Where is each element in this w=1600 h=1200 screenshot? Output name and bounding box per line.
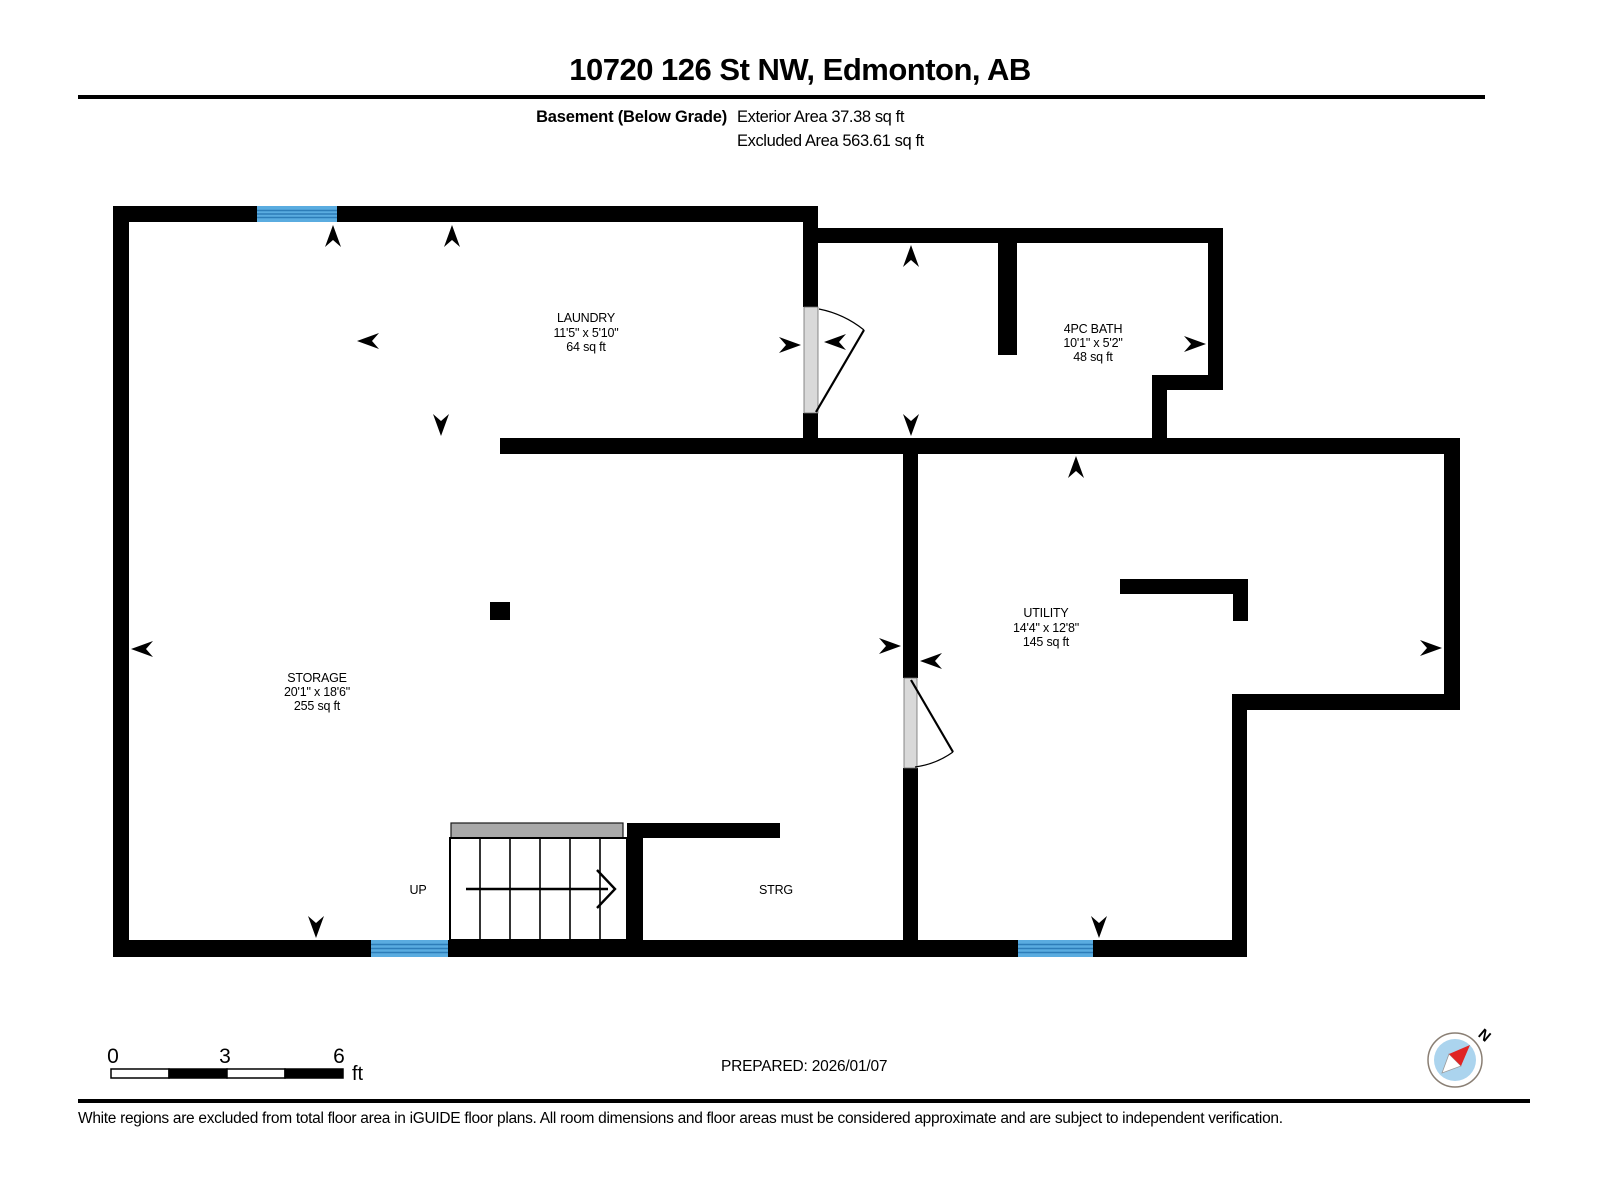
wall-segment bbox=[113, 206, 129, 957]
direction-arrow-icon bbox=[433, 414, 449, 436]
wall-segment bbox=[903, 768, 918, 957]
window-marker bbox=[371, 940, 448, 957]
wall-segment bbox=[1232, 694, 1460, 710]
direction-arrow-icon bbox=[1420, 640, 1442, 656]
wall-segment bbox=[803, 206, 818, 307]
compass-icon: N bbox=[1428, 1026, 1494, 1087]
direction-arrow-icon bbox=[824, 334, 846, 350]
floorplan-page: 10720 126 St NW, Edmonton, AB Basement (… bbox=[0, 0, 1600, 1200]
windows bbox=[257, 206, 1093, 957]
scale-segment bbox=[169, 1069, 227, 1078]
door-swing-utility bbox=[904, 678, 953, 768]
wall-segment bbox=[627, 823, 643, 957]
wall-segment bbox=[1232, 694, 1247, 957]
wall-segment bbox=[998, 243, 1017, 355]
room-label-storage-area: 255 sq ft bbox=[294, 699, 341, 713]
floorplan-drawing: LAUNDRY 11'5" x 5'10" 64 sq ft 4PC BATH … bbox=[0, 0, 1600, 1200]
direction-arrow-icon bbox=[1068, 456, 1084, 478]
scale-segment bbox=[111, 1069, 169, 1078]
window-marker bbox=[257, 206, 337, 222]
wall-segment bbox=[818, 228, 1223, 243]
direction-arrow-icon bbox=[920, 653, 942, 669]
room-label-laundry-name: LAUNDRY bbox=[557, 311, 616, 325]
scale-unit-label: ft bbox=[352, 1063, 364, 1085]
room-label-storage-name: STORAGE bbox=[287, 671, 347, 685]
room-label-bath-area: 48 sq ft bbox=[1073, 350, 1113, 364]
strg-label: STRG bbox=[759, 883, 793, 897]
room-label-utility-area: 145 sq ft bbox=[1023, 635, 1070, 649]
scale-tick-3: 3 bbox=[219, 1045, 231, 1068]
support-column bbox=[490, 602, 510, 620]
direction-arrow-icon bbox=[903, 245, 919, 267]
room-label-laundry-area: 64 sq ft bbox=[566, 340, 606, 354]
direction-arrow-icon bbox=[1091, 916, 1107, 938]
wall-segment bbox=[500, 438, 1460, 454]
scale-tick-0: 0 bbox=[107, 1045, 119, 1068]
footer-divider bbox=[78, 1099, 1530, 1103]
door-swing-laundry bbox=[804, 307, 864, 413]
disclaimer-text: White regions are excluded from total fl… bbox=[78, 1110, 1538, 1128]
stairs-up-label: UP bbox=[410, 883, 427, 897]
wall-segment bbox=[113, 206, 818, 222]
direction-arrow-icon bbox=[131, 641, 153, 657]
direction-arrow-icon bbox=[444, 225, 460, 247]
room-label-bath-dims: 10'1" x 5'2" bbox=[1063, 336, 1122, 350]
direction-arrow-icon bbox=[779, 337, 801, 353]
wall-segment bbox=[1233, 594, 1248, 621]
wall-segment bbox=[1208, 243, 1223, 390]
window-marker bbox=[1018, 940, 1093, 957]
direction-arrow-icon bbox=[357, 333, 379, 349]
scale-segment bbox=[227, 1069, 285, 1078]
scale-segment bbox=[285, 1069, 343, 1078]
room-label-laundry-dims: 11'5" x 5'10" bbox=[553, 326, 618, 340]
direction-arrow-icon bbox=[325, 225, 341, 247]
wall-segment bbox=[1120, 579, 1248, 594]
direction-arrow-icon bbox=[308, 916, 324, 938]
wall-segment bbox=[903, 454, 918, 678]
wall-segment bbox=[1152, 375, 1223, 390]
room-label-storage-dims: 20'1" x 18'6" bbox=[284, 685, 350, 699]
scale-bar: 0 3 6 ft bbox=[107, 1045, 363, 1085]
room-label-utility-dims: 14'4" x 12'8" bbox=[1013, 621, 1079, 635]
prepared-date: PREPARED: 2026/01/07 bbox=[721, 1058, 887, 1076]
room-label-utility-name: UTILITY bbox=[1023, 606, 1069, 620]
wall-segment bbox=[643, 823, 780, 838]
room-label-bath-name: 4PC BATH bbox=[1064, 322, 1123, 336]
direction-arrow-icon bbox=[879, 638, 901, 654]
compass-north-label: N bbox=[1475, 1026, 1494, 1046]
staircase bbox=[450, 823, 627, 940]
room-labels: LAUNDRY 11'5" x 5'10" 64 sq ft 4PC BATH … bbox=[284, 311, 1123, 897]
direction-arrow-icon bbox=[1184, 336, 1206, 352]
walls bbox=[113, 206, 1460, 957]
scale-tick-6: 6 bbox=[333, 1045, 345, 1068]
direction-arrow-icon bbox=[903, 414, 919, 436]
wall-segment bbox=[1444, 438, 1460, 710]
